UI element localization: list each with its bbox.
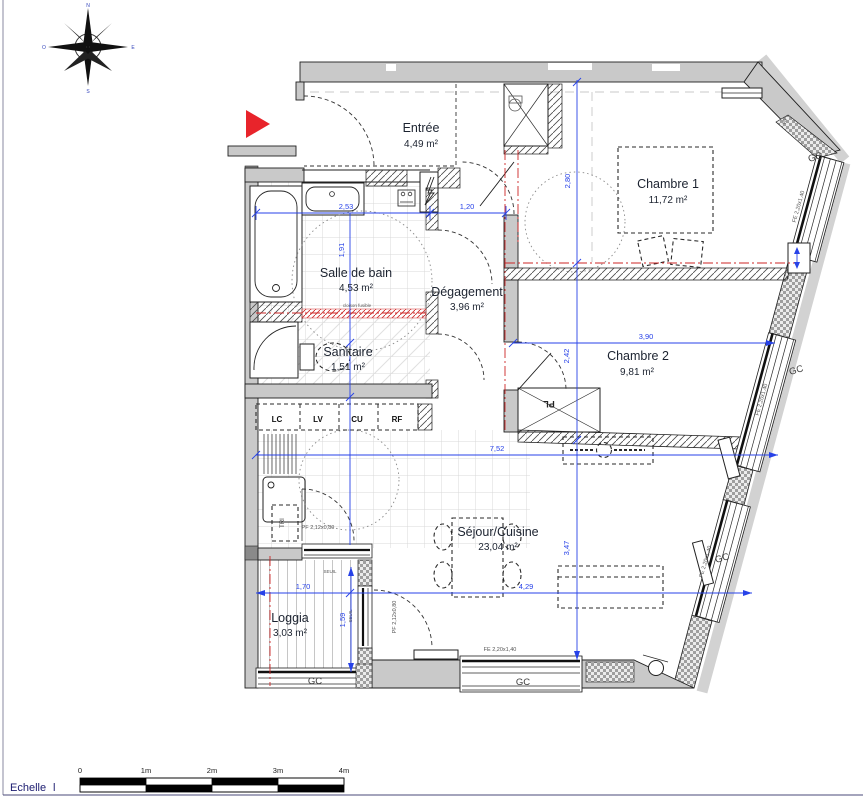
- cloison-fusible-strip: [302, 309, 426, 318]
- floor-plan-page: LC LV CU RF: [0, 0, 863, 800]
- loggia-top-wall: [258, 548, 302, 560]
- scale-tick-4m: 4m: [339, 766, 349, 775]
- dim-120: 1,20: [460, 202, 475, 211]
- bathroom-door-swing: [438, 230, 492, 284]
- compass-south-label: S: [86, 89, 90, 95]
- room-area-salle-de-bain: 4,53 m²: [339, 283, 374, 294]
- compass-east-label: E: [131, 45, 135, 51]
- scale-tick-3m: 3m: [273, 766, 283, 775]
- compass-rose: N S E O: [42, 3, 135, 95]
- scale-tick-0: 0: [78, 766, 82, 775]
- entrance-arrow: [246, 110, 270, 138]
- dim-159: 1,59: [338, 613, 347, 628]
- dim-191: 1,91: [337, 243, 346, 258]
- room-name-chambre2: Chambre 2: [607, 349, 669, 363]
- scale-marker: l: [53, 782, 55, 794]
- room-name-degagement: Dégagement: [431, 285, 503, 299]
- compass-north-label: N: [86, 3, 90, 9]
- room-area-degagement: 3,96 m²: [450, 302, 485, 313]
- gc-label-loggia: GC: [308, 676, 322, 687]
- room-area-loggia: 3,03 m²: [273, 628, 308, 639]
- scale-bar: Echelle l 0 1m 2m 3m 4m: [10, 766, 349, 794]
- chambre2-door-swing: [518, 342, 566, 390]
- dim-253: 2,53: [339, 202, 354, 211]
- sofa: [558, 566, 663, 608]
- dim-170: 1,70: [296, 582, 311, 591]
- top-wall: [300, 62, 762, 82]
- room-name-loggia: Loggia: [271, 611, 309, 625]
- dim-752: 7,52: [490, 444, 505, 453]
- scale-tick-2m: 2m: [207, 766, 217, 775]
- top-right-wall: [744, 62, 840, 156]
- room-area-entree: 4,49 m²: [404, 139, 439, 150]
- kitchen-unit-lc: LC: [272, 415, 283, 424]
- kitchen-units: LC LV CU RF: [256, 404, 418, 430]
- gc-label-south: GC: [516, 677, 530, 688]
- chair: [434, 562, 452, 588]
- sanitaire-door-swing: [438, 334, 484, 380]
- door-size-label-sejour: PF 2,12x0,80: [392, 601, 398, 634]
- seuil-label-side: SEUIL: [348, 609, 353, 623]
- scale-label: Echelle: [10, 782, 46, 794]
- room-name-chambre1: Chambre 1: [637, 177, 699, 191]
- door-size-label-kitchen: PF 2,12x0,80: [302, 525, 335, 531]
- seuil-label-top: SEUIL: [323, 569, 337, 574]
- dim-280: 2,80: [563, 174, 572, 189]
- clearance-circle: [525, 172, 625, 272]
- placard-label: PL: [543, 399, 555, 409]
- scale-tick-1m: 1m: [141, 766, 151, 775]
- room-area-sejour: 23,04 m²: [478, 542, 518, 553]
- sanitaire-vanity: [250, 322, 298, 378]
- room-name-sanitaire: Sanitaire: [323, 345, 372, 359]
- room-area-chambre1: 11,72 m²: [649, 195, 688, 206]
- dim-390: 3,90: [639, 332, 654, 341]
- chambre2-bottom-wall: [518, 430, 742, 449]
- entry-door-swing: [304, 96, 374, 166]
- kitchen-unit-rf: RF: [392, 415, 403, 424]
- dim-429: 4,29: [519, 582, 534, 591]
- porte-fenetre-sejour: [358, 586, 372, 648]
- kitchen-unit-cu: CU: [351, 415, 363, 424]
- room-name-entree: Entrée: [403, 121, 440, 135]
- wall-detail: [788, 243, 810, 273]
- kitchen-unit-lv: LV: [313, 415, 323, 424]
- floor-plan-drawing: LC LV CU RF: [0, 0, 863, 800]
- porte-fenetre-kitchen: [302, 544, 372, 558]
- dim-347: 3,47: [562, 541, 571, 556]
- compass-west-label: O: [42, 45, 46, 51]
- window-size-label-south: FE 2,20x1,40: [484, 647, 517, 653]
- chambre-separation-wall: [504, 268, 790, 280]
- room-area-sanitaire: 1,51 m²: [331, 362, 366, 373]
- room-name-salle-de-bain: Salle de bain: [320, 266, 392, 280]
- tri-label: TRI: [280, 518, 286, 528]
- corner-column: [649, 661, 664, 676]
- sejour-loggia-door-swing: [374, 590, 432, 648]
- room-name-sejour: Séjour/Cuisine: [457, 525, 538, 539]
- sanitaire-bottom-wall: [245, 384, 432, 398]
- dim-242: 2,42: [562, 349, 571, 364]
- cloison-fusible-label: cloison fusible: [343, 303, 372, 308]
- radiator: [414, 650, 458, 659]
- neighbor-wall-stub: [228, 146, 296, 156]
- wc-cistern: [300, 344, 314, 370]
- room-area-chambre2: 9,81 m²: [620, 367, 655, 378]
